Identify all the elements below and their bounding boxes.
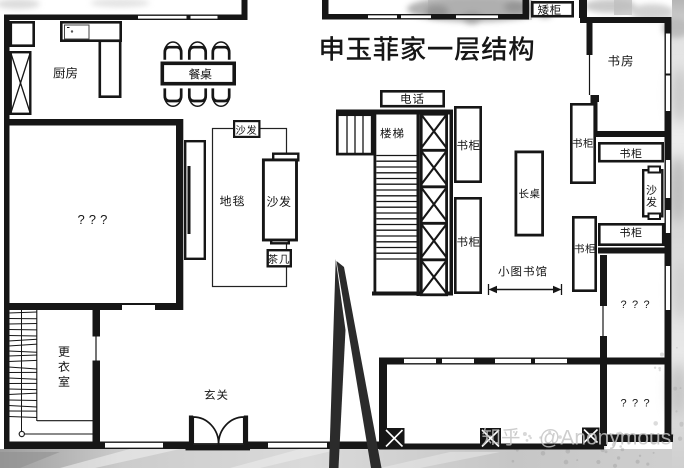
svg-text:?: ? bbox=[632, 299, 638, 311]
svg-text:?: ? bbox=[621, 398, 627, 410]
svg-text:?: ? bbox=[78, 212, 85, 227]
svg-text:?: ? bbox=[632, 398, 638, 410]
svg-text:?: ? bbox=[89, 212, 96, 227]
svg-text:@Anonymous: @Anonymous bbox=[539, 427, 671, 450]
svg-text:?: ? bbox=[100, 212, 107, 227]
svg-text:?: ? bbox=[621, 299, 627, 311]
svg-text:?: ? bbox=[644, 299, 650, 311]
svg-text:?: ? bbox=[644, 398, 650, 410]
